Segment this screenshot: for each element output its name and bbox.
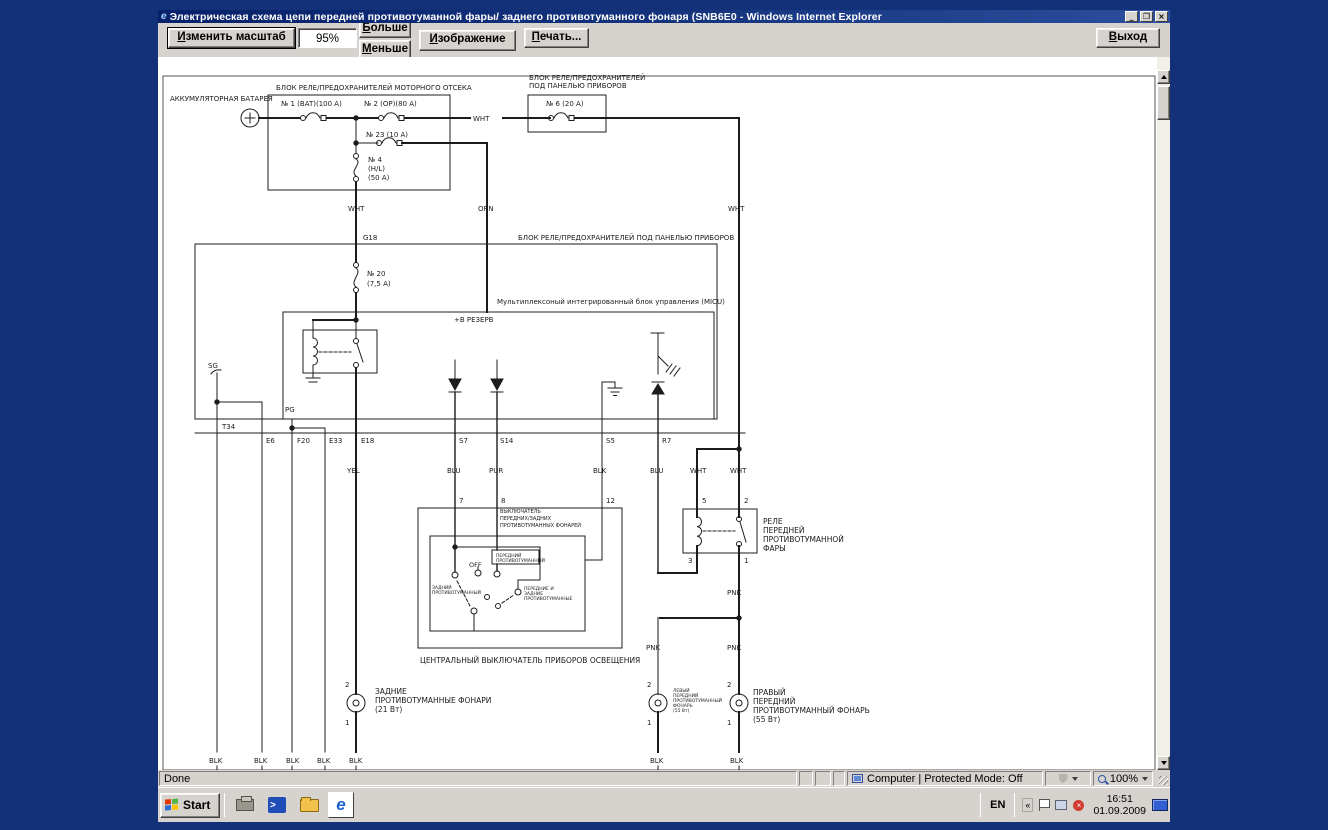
diagram-label: PG bbox=[285, 406, 295, 414]
diagram-label: BLK bbox=[209, 757, 223, 765]
taskbar: Start > e EN « × 16:51 01.09.2009 bbox=[158, 787, 1170, 822]
diagram-label: ПЕРЕДНИЙ bbox=[673, 692, 698, 699]
clock-time: 16:51 bbox=[1107, 793, 1133, 805]
scroll-up-icon bbox=[1161, 75, 1167, 79]
close-button[interactable]: × bbox=[1155, 11, 1168, 22]
exit-button[interactable]: Выход bbox=[1096, 28, 1160, 48]
quicklaunch-folder[interactable] bbox=[296, 792, 322, 818]
diagram-label: № 1 (BAT)(100 A) bbox=[281, 100, 342, 108]
security-zone-pane: Computer | Protected Mode: Off bbox=[847, 771, 1043, 786]
internet-explorer-icon: e bbox=[336, 797, 345, 813]
print-button[interactable]: Печать... bbox=[524, 28, 589, 48]
diagram-label: ПРОТИВОТУМАННЫЙ ФОНАРЬ bbox=[753, 706, 870, 715]
dropdown-arrow-icon bbox=[1072, 777, 1078, 781]
zoom-less-button[interactable]: Меньше bbox=[359, 40, 411, 57]
diagram-label: ПЕРЕДНЕЙ bbox=[763, 526, 805, 535]
diagram-label: (21 Вт) bbox=[375, 705, 402, 714]
diagram-label: ПРОТИВОТУМАННЫЕ bbox=[524, 596, 573, 602]
zone-text: Computer | Protected Mode: Off bbox=[867, 773, 1023, 785]
diagram-label: 2 bbox=[647, 681, 651, 689]
remote-screen: e Электрическая схема цепи передней прот… bbox=[158, 10, 1170, 822]
page-zoom-pane[interactable]: 100% bbox=[1093, 771, 1153, 786]
diagram-label: E18 bbox=[361, 437, 374, 445]
network-icon[interactable] bbox=[1055, 800, 1067, 810]
diagram-label: ПРОТИВОТУМАННЫЙ bbox=[432, 589, 481, 596]
vertical-scrollbar[interactable] bbox=[1157, 57, 1170, 770]
page-zoom-value: 100% bbox=[1110, 773, 1138, 785]
status-message: Done bbox=[159, 771, 797, 786]
diagram-label: ПЕРЕДНИХ/ЗАДНИХ bbox=[500, 516, 552, 522]
protected-mode-pane[interactable] bbox=[1045, 771, 1091, 786]
diagram-label: 1 bbox=[744, 557, 748, 565]
diagram-label: WHT bbox=[690, 467, 707, 475]
diagram-label: S14 bbox=[500, 437, 514, 445]
diagram-label: ПРОТИВОТУМАННЫЕ ФОНАРИ bbox=[375, 696, 491, 705]
quicklaunch-powershell[interactable]: > bbox=[264, 792, 290, 818]
status-pane-2 bbox=[815, 771, 831, 786]
diagram-label: +B РЕЗЕРВ bbox=[454, 316, 494, 324]
diagram-label: F20 bbox=[297, 437, 310, 445]
diagram-label: (55 Вт) bbox=[673, 708, 690, 714]
diagram-label: 12 bbox=[606, 497, 615, 505]
diagram-label: ФАРЫ bbox=[763, 544, 786, 553]
language-indicator[interactable]: EN bbox=[985, 797, 1010, 813]
diagram-label: 7 bbox=[459, 497, 463, 505]
quicklaunch-printer[interactable] bbox=[232, 792, 258, 818]
diagram-label: WHT bbox=[473, 115, 490, 123]
scroll-down-button[interactable] bbox=[1157, 756, 1170, 770]
volume-muted-icon[interactable]: × bbox=[1073, 800, 1084, 811]
diagram-label: YEL bbox=[346, 467, 360, 475]
diagram-label: АККУМУЛЯТОРНАЯ БАТАРЕЯ bbox=[170, 95, 273, 103]
diagram-label: S5 bbox=[606, 437, 615, 445]
tray-separator bbox=[980, 793, 981, 817]
diagram-label: BLK bbox=[650, 757, 664, 765]
diagram-label: BLK bbox=[317, 757, 331, 765]
diagram-label: E33 bbox=[329, 437, 342, 445]
diagram-label: ЗАДНИЙ bbox=[432, 584, 452, 591]
diagram-label: BLK bbox=[593, 467, 607, 475]
diagram-label: OFF bbox=[469, 561, 482, 569]
diagram-label: ЗАДНИЕ bbox=[375, 687, 407, 696]
security-flag-icon[interactable] bbox=[1039, 799, 1049, 811]
diagram-label: № 6 (20 A) bbox=[546, 100, 584, 108]
diagram-label: ЛЕВЫЙ bbox=[673, 687, 690, 694]
document-area: АККУМУЛЯТОРНАЯ БАТАРЕЯБЛОК РЕЛЕ/ПРЕДОХРА… bbox=[158, 57, 1170, 770]
tray-separator-2 bbox=[1014, 793, 1015, 817]
status-pane-3 bbox=[833, 771, 845, 786]
diagram-label: БЛОК РЕЛЕ/ПРЕДОХРАНИТЕЛЕЙ ПОД ПАНЕЛЬЮ ПР… bbox=[518, 233, 734, 242]
shield-icon bbox=[1059, 774, 1068, 784]
start-button[interactable]: Start bbox=[160, 793, 220, 818]
window-titlebar: e Электрическая схема цепи передней прот… bbox=[158, 10, 1170, 23]
diagram-label: 3 bbox=[688, 557, 692, 565]
diagram-label: (H/L) bbox=[368, 165, 385, 173]
windows-flag-icon bbox=[165, 799, 179, 812]
toolbar: Изменить масштаб Больше Меньше Изображен… bbox=[158, 23, 1170, 57]
diagram-label: 8 bbox=[501, 497, 505, 505]
zoom-dropdown-arrow-icon bbox=[1142, 777, 1148, 781]
diagram-label: 1 bbox=[647, 719, 651, 727]
change-scale-button[interactable]: Изменить масштаб bbox=[168, 28, 295, 48]
diagram-label: PUR bbox=[489, 467, 503, 475]
diagram-label: BLK bbox=[254, 757, 268, 765]
diagram-label: T34 bbox=[221, 423, 236, 431]
minimize-button[interactable]: _ bbox=[1125, 11, 1138, 22]
scroll-up-button[interactable] bbox=[1157, 70, 1170, 84]
system-tray: EN « × 16:51 01.09.2009 bbox=[976, 791, 1168, 819]
diagram-label: SG bbox=[208, 362, 218, 370]
diagram-label: BLU bbox=[650, 467, 663, 475]
diagram-label: E6 bbox=[266, 437, 275, 445]
zoom-value-input[interactable] bbox=[298, 28, 357, 48]
diagram-label: 5 bbox=[702, 497, 706, 505]
diagram-label: 2 bbox=[345, 681, 349, 689]
diagram-label: BLK bbox=[349, 757, 363, 765]
window-title: Электрическая схема цепи передней против… bbox=[170, 11, 882, 23]
diagram-label: S7 bbox=[459, 437, 468, 445]
diagram-label: ПРОТИВОТУМАННЫХ ФОНАРЕЙ bbox=[500, 522, 581, 529]
diagram-label: БЛОК РЕЛЕ/ПРЕДОХРАНИТЕЛЕЙ МОТОРНОГО ОТСЕ… bbox=[276, 83, 472, 92]
diagram-label: № 23 (10 A) bbox=[366, 131, 408, 139]
start-label: Start bbox=[183, 798, 210, 812]
folder-icon bbox=[300, 799, 319, 812]
quicklaunch-internet-explorer[interactable]: e bbox=[328, 792, 354, 818]
diagram-label: (55 Вт) bbox=[753, 715, 780, 724]
diagram-label: № 20 bbox=[367, 270, 385, 278]
diagram-label: ПРОТИВОТУМАННОЙ bbox=[763, 535, 844, 544]
diagram-label: (7,5 A) bbox=[367, 280, 391, 288]
show-desktop-icon[interactable] bbox=[1152, 799, 1168, 811]
powershell-icon: > bbox=[268, 797, 286, 813]
diagram-label: PNK bbox=[727, 644, 741, 652]
diagram-label: PNK bbox=[727, 589, 741, 597]
scroll-thumb[interactable] bbox=[1157, 86, 1170, 120]
scroll-down-icon bbox=[1161, 761, 1167, 765]
diagram-label: 1 bbox=[345, 719, 349, 727]
status-pane-1 bbox=[799, 771, 813, 786]
diagram-label: WHT bbox=[728, 205, 745, 213]
diagram-label: WHT bbox=[348, 205, 365, 213]
diagram-label: ORN bbox=[478, 205, 494, 213]
diagram-label: ПРАВЫЙ bbox=[753, 688, 786, 697]
ie-logo-icon: e bbox=[161, 12, 167, 22]
diagram-label: № 2 (OP)(80 A) bbox=[364, 100, 417, 108]
zoom-more-button[interactable]: Больше bbox=[359, 23, 411, 38]
diagram-label: ПЕРЕДНИЙ bbox=[753, 697, 795, 706]
diagram-label: ПОД ПАНЕЛЬЮ ПРИБОРОВ bbox=[529, 82, 627, 90]
diagram-label: № 4 bbox=[368, 156, 383, 164]
restore-button[interactable]: ❐ bbox=[1140, 11, 1153, 22]
diagram-label: BLU bbox=[447, 467, 460, 475]
diagram-label: PNK bbox=[646, 644, 660, 652]
diagram-label: ЦЕНТРАЛЬНЫЙ ВЫКЛЮЧАТЕЛЬ ПРИБОРОВ ОСВЕЩЕН… bbox=[420, 656, 640, 665]
diagram-label: BLK bbox=[730, 757, 744, 765]
wiring-diagram: АККУМУЛЯТОРНАЯ БАТАРЕЯБЛОК РЕЛЕ/ПРЕДОХРА… bbox=[158, 57, 1157, 770]
computer-zone-icon bbox=[852, 774, 863, 783]
magnifier-icon bbox=[1098, 775, 1106, 783]
resize-grip[interactable] bbox=[1155, 771, 1169, 786]
diagram-label: РЕЛЕ bbox=[763, 517, 783, 526]
clock-date: 01.09.2009 bbox=[1093, 805, 1146, 817]
taskbar-separator bbox=[224, 793, 225, 817]
diagram-label: ПЕРЕДНИЙ bbox=[496, 552, 521, 559]
diagram-label: ПРОТИВОТУМАННЫЙ bbox=[673, 697, 722, 704]
diagram-label: R7 bbox=[662, 437, 671, 445]
hide-icons-chevron[interactable]: « bbox=[1022, 798, 1033, 812]
diagram-label: ПРОТИВОТУМАННЫЙ bbox=[496, 557, 545, 564]
diagram-label: ВЫКЛЮЧАТЕЛЬ bbox=[500, 509, 541, 515]
diagram-label: G18 bbox=[363, 234, 377, 242]
diagram-label: 2 bbox=[744, 497, 748, 505]
diagram-label: Мультиплексоный интегрированный блок упр… bbox=[497, 298, 725, 306]
diagram-label: БЛОК РЕЛЕ/ПРЕДОХРАНИТЕЛЕЙ bbox=[529, 73, 645, 82]
diagram-label: BLK bbox=[286, 757, 300, 765]
status-bar: Done Computer | Protected Mode: Off 100% bbox=[158, 770, 1170, 787]
printer-icon bbox=[236, 799, 254, 811]
clock[interactable]: 16:51 01.09.2009 bbox=[1093, 793, 1146, 817]
diagram-label: WHT bbox=[730, 467, 747, 475]
diagram-label: 2 bbox=[727, 681, 731, 689]
image-button[interactable]: Изображение bbox=[419, 30, 516, 51]
diagram-label: (50 A) bbox=[368, 174, 390, 182]
diagram-label: 1 bbox=[727, 719, 731, 727]
